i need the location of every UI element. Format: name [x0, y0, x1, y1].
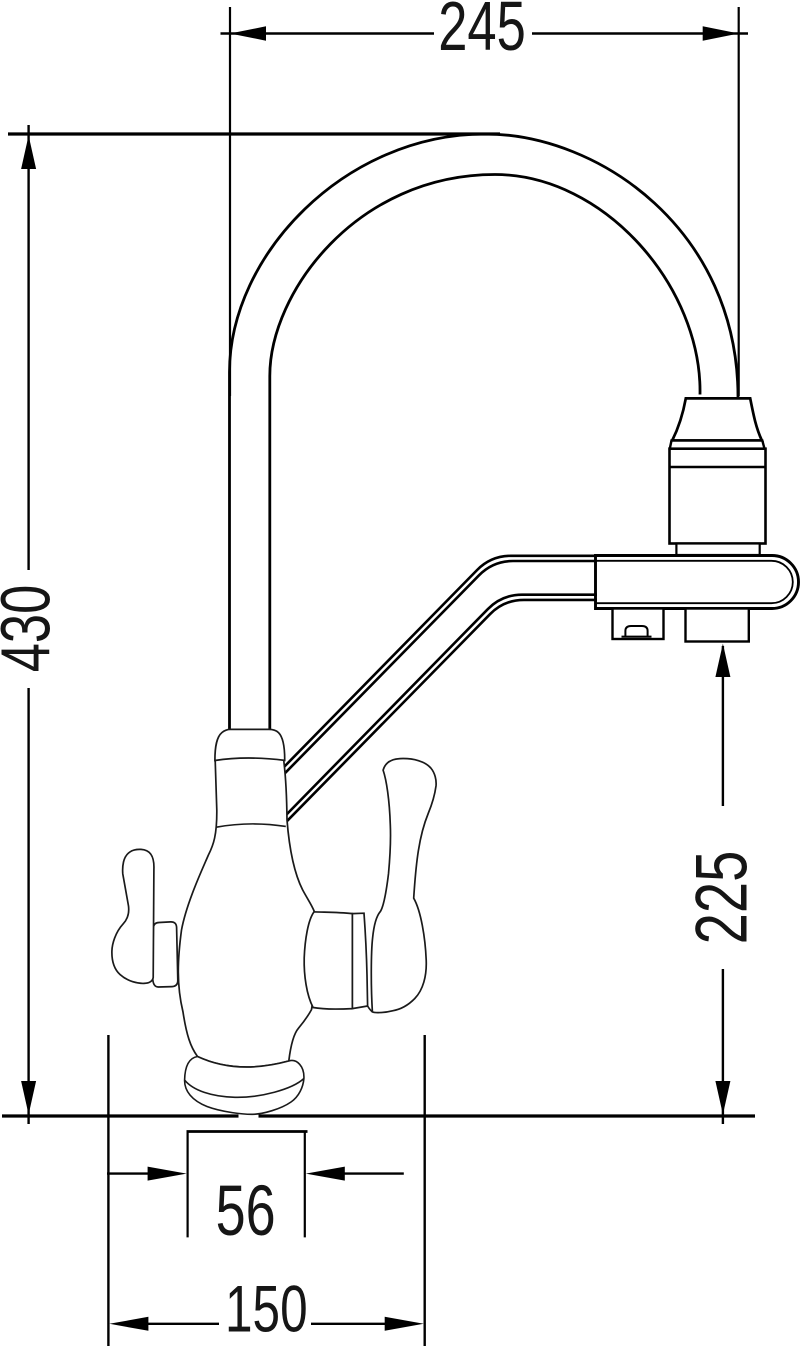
svg-text:56: 56: [216, 1172, 276, 1251]
svg-text:430: 430: [0, 585, 65, 673]
svg-text:245: 245: [438, 0, 526, 66]
svg-text:150: 150: [225, 1273, 308, 1346]
svg-text:225: 225: [680, 851, 762, 945]
